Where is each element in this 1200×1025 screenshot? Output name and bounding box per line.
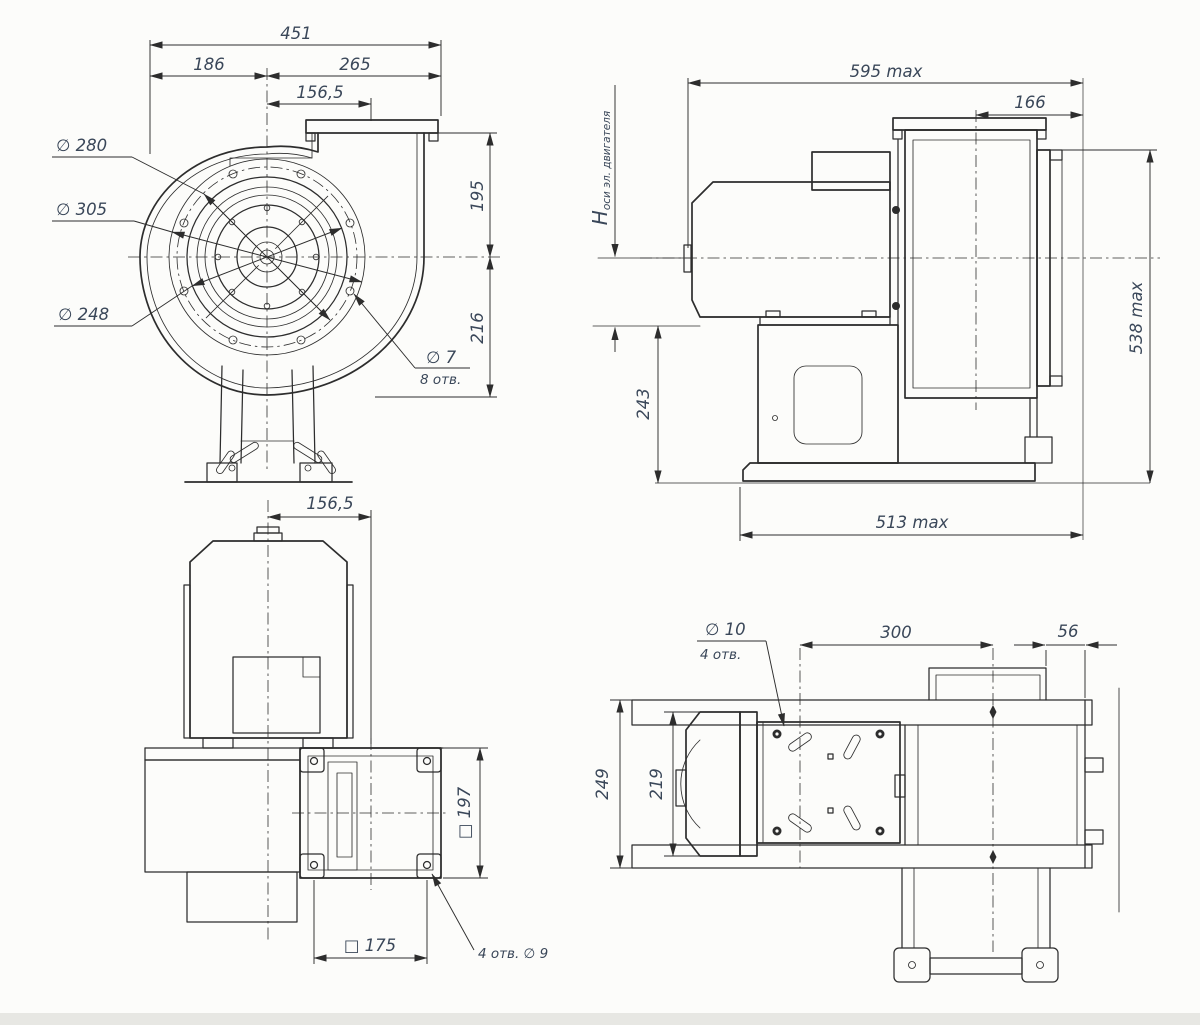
view-side: 595 max 166 538 max Hоси эл. двигателя 2… — [588, 62, 1160, 541]
dim-overall-length: 595 max — [688, 62, 1083, 248]
view-bottom-left: 156,5 □ 197 □ 175 4 отв. ∅ 9 — [145, 494, 548, 964]
dim-outlet-offset-label: 156,5 — [296, 83, 343, 102]
dim-flange-outer-label: ∅ 305 — [56, 200, 107, 219]
note-mount-hole-count-label: 4 отв. — [700, 647, 741, 663]
dim-overall-height: 538 max — [1052, 150, 1157, 483]
note-mount-hole-dia-label: ∅ 10 — [705, 620, 746, 639]
dim-flange-square: □ 197 — [443, 748, 488, 878]
dim-frame-width: 249 — [593, 700, 636, 868]
casing-top-view — [905, 668, 1119, 912]
axis-symbol-subscript: оси эл. двигателя — [601, 111, 613, 210]
note-outlet-holes-label: 4 отв. ∅ 9 — [478, 946, 548, 962]
motor-pedestal — [700, 311, 898, 463]
dim-width-right-label: 265 — [339, 55, 371, 74]
technical-drawing: 451 186 265 156,5 195 216 ∅ 280 — [0, 0, 1200, 1025]
dim-pedestal-height-label: 243 — [634, 388, 653, 420]
centerlines-top — [800, 648, 997, 952]
centerlines-side — [640, 110, 1160, 410]
dim-motor-axis-height-label: Hоси эл. двигателя — [588, 111, 613, 225]
casing-side — [893, 118, 1062, 463]
dim-base-length: 513 max — [740, 487, 1083, 541]
dim-hole-dia-label: ∅ 7 — [426, 348, 457, 367]
motor-bottom-view — [184, 527, 353, 748]
dim-flange-square-label: □ 197 — [455, 786, 474, 839]
view-front: 451 186 265 156,5 195 216 ∅ 280 — [52, 24, 500, 482]
dim-hole-pitch-label: 300 — [880, 623, 912, 642]
motor-side — [684, 152, 900, 317]
dim-hole-pitch: 300 — [800, 623, 993, 645]
dim-overhang: 56 — [1014, 622, 1117, 698]
dim-height-below-axis-label: 216 — [468, 312, 487, 344]
dim-frame-width-label: 249 — [593, 768, 612, 800]
dim-overall-length-label: 595 max — [850, 62, 923, 81]
frame-bottom-view — [145, 748, 443, 922]
page-edge-strip — [0, 1013, 1200, 1025]
mount-plate-top-view — [757, 722, 905, 843]
note-mount-holes: ∅ 10 4 отв. — [697, 620, 784, 726]
view-top: ∅ 10 4 отв. 300 56 249 219 — [593, 620, 1119, 982]
dim-height-above-axis: 195 — [436, 133, 497, 257]
outlet-flange-front — [292, 738, 449, 890]
dim-bolt-circle-label: ∅ 280 — [56, 136, 107, 155]
dim-width-left-label: 186 — [193, 55, 225, 74]
dim-flange-outer: ∅ 305 — [52, 200, 362, 282]
dim-pedestal-height: 243 — [634, 326, 658, 483]
motor-top-view — [676, 712, 757, 856]
outlet-duct-top-view — [894, 868, 1058, 982]
axis-symbol: H — [588, 210, 612, 225]
dim-motor-axis-height: Hоси эл. двигателя — [588, 85, 700, 352]
dim-outlet-offset: 156,5 — [267, 83, 371, 121]
dim-hole-count-label: 8 отв. — [420, 372, 461, 388]
dim-bolt-square: □ 175 — [314, 880, 427, 964]
dim-bolt-square-label: □ 175 — [344, 936, 396, 955]
dim-height-above-axis-label: 195 — [468, 180, 487, 212]
dim-bolt-circle: ∅ 280 — [52, 136, 330, 320]
dim-outlet-offset-bottom-label: 156,5 — [306, 494, 353, 513]
drawing-page: 451 186 265 156,5 195 216 ∅ 280 — [0, 0, 1200, 1025]
dim-overall-width-label: 451 — [280, 24, 312, 43]
dim-overhang-label: 56 — [1058, 622, 1079, 641]
dim-overall-height-label: 538 max — [1127, 281, 1146, 354]
dim-collar-depth: 166 — [976, 93, 1083, 115]
dim-inlet-dia: ∅ 248 — [54, 228, 342, 326]
dim-width-split: 186 265 — [150, 55, 441, 76]
note-outlet-holes: 4 отв. ∅ 9 — [432, 874, 548, 962]
dim-inlet-dia-label: ∅ 248 — [58, 305, 109, 324]
dim-base-length-label: 513 max — [876, 513, 949, 532]
dim-mount-width: 219 — [647, 712, 742, 856]
dim-mount-width-label: 219 — [647, 768, 666, 800]
dim-collar-depth-label: 166 — [1014, 93, 1046, 112]
base-side — [655, 78, 1150, 540]
